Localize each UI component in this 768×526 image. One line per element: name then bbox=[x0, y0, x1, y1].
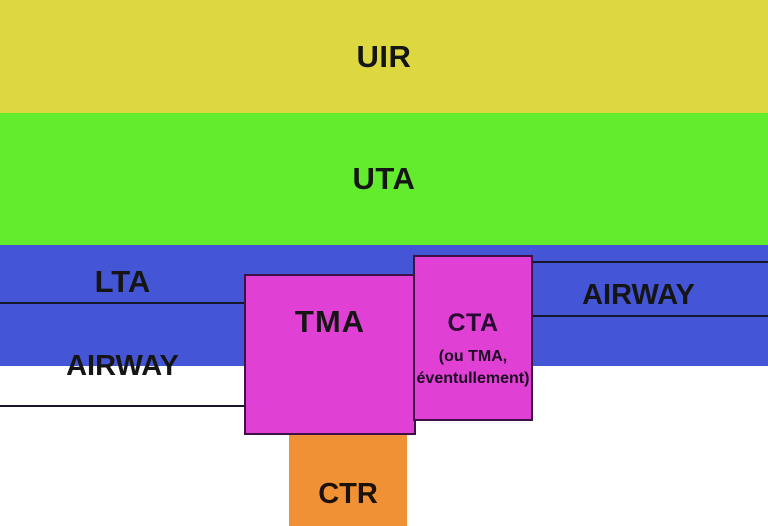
uta-label: UTA bbox=[353, 161, 416, 197]
ctr-box: CTR bbox=[289, 435, 407, 526]
airway-left-label: AIRWAY bbox=[0, 350, 245, 383]
level-line-right-upper bbox=[531, 261, 768, 263]
tma-label: TMA bbox=[295, 304, 365, 339]
uir-band: UIR bbox=[0, 0, 768, 113]
tma-box: TMA bbox=[244, 274, 416, 435]
ctr-label: CTR bbox=[318, 478, 378, 510]
cta-label: CTA bbox=[415, 309, 531, 338]
airspace-structure-diagram: UIR UTA LTA AIRWAY AIRWAY TMA CTA (ou TM… bbox=[0, 0, 768, 526]
cta-note-line1: (ou TMA, bbox=[415, 346, 531, 368]
level-line-left-upper bbox=[0, 302, 245, 304]
cta-box: CTA (ou TMA, éventullement) bbox=[413, 255, 533, 421]
airway-right-label: AIRWAY bbox=[520, 279, 757, 312]
uir-label: UIR bbox=[357, 39, 412, 75]
cta-note-line2: éventullement) bbox=[415, 368, 531, 390]
uta-band: UTA bbox=[0, 113, 768, 245]
level-line-right-lower bbox=[531, 315, 768, 317]
lta-label: LTA bbox=[0, 264, 245, 300]
level-line-left-lower bbox=[0, 405, 245, 407]
